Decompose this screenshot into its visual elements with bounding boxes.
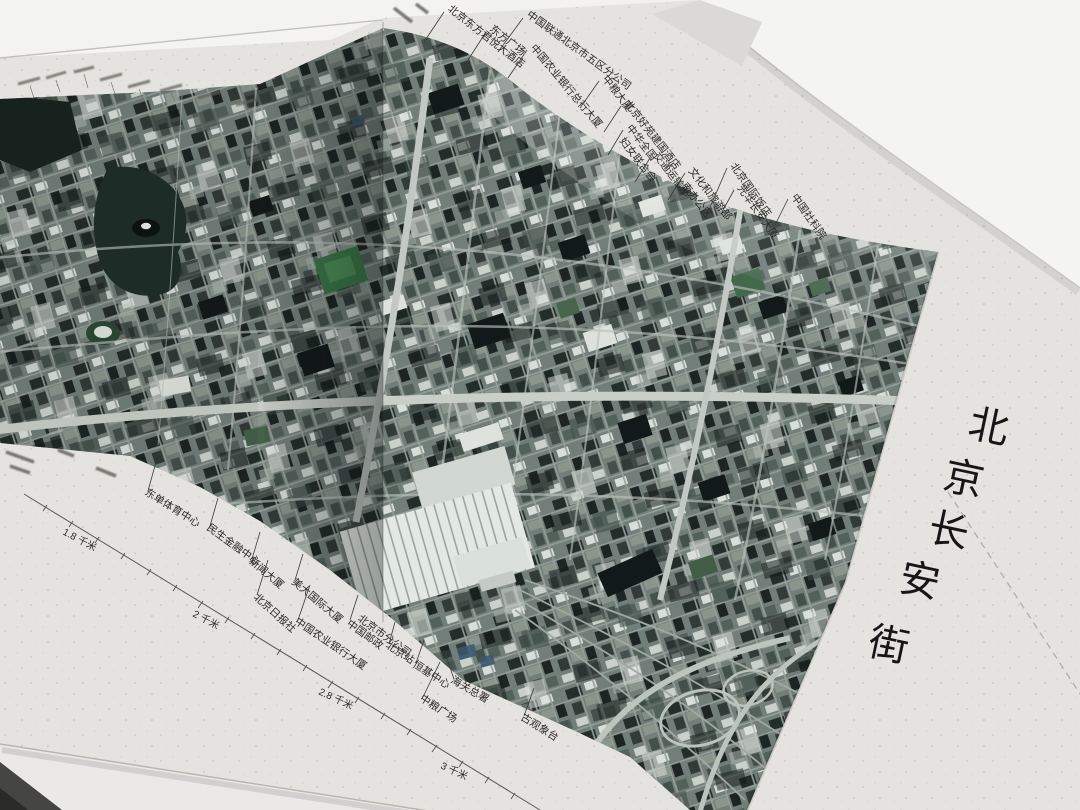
- map-book-scene: 北京东方君悦大酒店 东方广场 中国联通北京市五区分公司 中国农业银行总行大厦 中…: [0, 0, 1080, 810]
- vignette: [0, 0, 1080, 810]
- photo-of-map-book: 北京东方君悦大酒店 东方广场 中国联通北京市五区分公司 中国农业银行总行大厦 中…: [0, 0, 1080, 810]
